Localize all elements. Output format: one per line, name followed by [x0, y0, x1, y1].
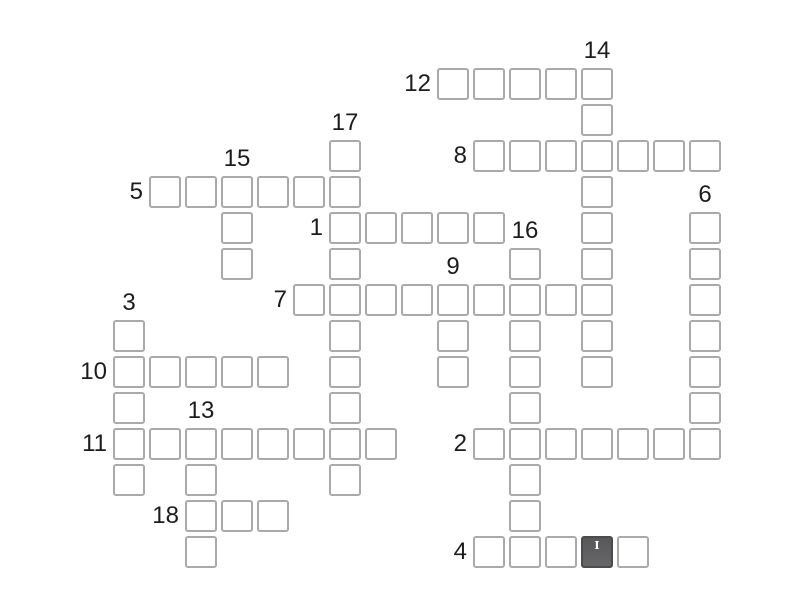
crossword-cell[interactable] — [437, 320, 469, 352]
crossword-cell[interactable] — [689, 320, 721, 352]
crossword-cell[interactable] — [401, 284, 433, 316]
crossword-cell[interactable] — [185, 428, 217, 460]
clue-number-9: 9 — [423, 254, 483, 280]
crossword-cell[interactable] — [221, 212, 253, 244]
crossword-cell[interactable] — [113, 320, 145, 352]
crossword-cell[interactable] — [149, 428, 181, 460]
clue-number-5: 5 — [95, 176, 143, 208]
crossword-cell[interactable] — [509, 140, 541, 172]
clue-number-12: 12 — [383, 68, 431, 100]
crossword-cell[interactable] — [401, 212, 433, 244]
crossword-cell[interactable] — [581, 176, 613, 208]
clue-number-7: 7 — [239, 284, 287, 316]
crossword-cell[interactable] — [329, 140, 361, 172]
crossword-cell[interactable] — [617, 428, 649, 460]
crossword-cell[interactable] — [581, 140, 613, 172]
crossword-cell[interactable] — [581, 428, 613, 460]
crossword-cell[interactable] — [581, 356, 613, 388]
crossword-cell[interactable] — [365, 212, 397, 244]
clue-number-14: 14 — [567, 38, 627, 64]
crossword-cell[interactable] — [689, 392, 721, 424]
crossword-cell[interactable] — [113, 464, 145, 496]
clue-number-17: 17 — [315, 110, 375, 136]
crossword-cell[interactable] — [113, 356, 145, 388]
crossword-cell[interactable] — [365, 428, 397, 460]
crossword-cell[interactable] — [257, 500, 289, 532]
crossword-cell-selected[interactable]: I — [581, 536, 613, 568]
crossword-cell[interactable] — [617, 536, 649, 568]
crossword-cell[interactable] — [329, 464, 361, 496]
crossword-cell[interactable] — [185, 500, 217, 532]
crossword-cell[interactable] — [149, 356, 181, 388]
crossword-cell[interactable] — [689, 284, 721, 316]
crossword-cell[interactable] — [221, 500, 253, 532]
crossword-cell[interactable] — [689, 428, 721, 460]
crossword-cell[interactable] — [509, 320, 541, 352]
crossword-cell[interactable] — [689, 140, 721, 172]
crossword-cell[interactable] — [473, 68, 505, 100]
crossword-cell[interactable] — [185, 464, 217, 496]
crossword-cell[interactable] — [293, 176, 325, 208]
text-cursor-icon: I — [583, 540, 611, 551]
crossword-cell[interactable] — [509, 284, 541, 316]
crossword-cell[interactable] — [509, 68, 541, 100]
crossword-cell[interactable] — [365, 284, 397, 316]
crossword-cell[interactable] — [545, 536, 577, 568]
crossword-cell[interactable] — [437, 356, 469, 388]
crossword-cell[interactable] — [581, 320, 613, 352]
crossword-cell[interactable] — [257, 428, 289, 460]
crossword-cell[interactable] — [545, 68, 577, 100]
crossword-cell[interactable] — [329, 428, 361, 460]
crossword-cell[interactable] — [473, 536, 505, 568]
crossword-cell[interactable] — [689, 212, 721, 244]
crossword-cell[interactable] — [509, 500, 541, 532]
crossword-cell[interactable] — [149, 176, 181, 208]
crossword-cell[interactable] — [689, 248, 721, 280]
clue-number-10: 10 — [59, 356, 107, 388]
crossword-cell[interactable] — [509, 392, 541, 424]
crossword-cell[interactable] — [581, 68, 613, 100]
crossword-cell[interactable] — [329, 356, 361, 388]
clue-number-8: 8 — [419, 140, 467, 172]
crossword-cell[interactable] — [293, 428, 325, 460]
crossword-cell[interactable] — [473, 428, 505, 460]
clue-number-18: 18 — [131, 500, 179, 532]
crossword-cell[interactable] — [509, 356, 541, 388]
crossword-cell[interactable] — [581, 212, 613, 244]
clue-number-15: 15 — [207, 146, 267, 172]
crossword-cell[interactable] — [113, 428, 145, 460]
crossword-cell[interactable] — [509, 464, 541, 496]
crossword-cell[interactable] — [473, 284, 505, 316]
crossword-cell[interactable] — [437, 212, 469, 244]
clue-number-2: 2 — [419, 428, 467, 460]
crossword-cell[interactable] — [221, 176, 253, 208]
crossword-cell[interactable] — [437, 68, 469, 100]
clue-number-13: 13 — [171, 398, 231, 424]
crossword-cell[interactable] — [113, 392, 145, 424]
page-background: 12148175151616793101311218I4 — [0, 0, 800, 600]
crossword-board: 12148175151616793101311218I4 — [0, 0, 800, 600]
crossword-cell[interactable] — [581, 104, 613, 136]
crossword-cell[interactable] — [329, 284, 361, 316]
crossword-cell[interactable] — [437, 284, 469, 316]
crossword-cell[interactable] — [329, 212, 361, 244]
crossword-cell[interactable] — [329, 248, 361, 280]
crossword-cell[interactable] — [221, 248, 253, 280]
crossword-cell[interactable] — [509, 248, 541, 280]
crossword-cell[interactable] — [221, 428, 253, 460]
crossword-cell[interactable] — [509, 428, 541, 460]
crossword-cell[interactable] — [545, 140, 577, 172]
crossword-cell[interactable] — [473, 140, 505, 172]
crossword-cell[interactable] — [509, 536, 541, 568]
crossword-cell[interactable] — [653, 428, 685, 460]
crossword-cell[interactable] — [581, 248, 613, 280]
crossword-cell[interactable] — [221, 356, 253, 388]
crossword-cell[interactable] — [329, 392, 361, 424]
crossword-cell[interactable] — [293, 284, 325, 316]
crossword-cell[interactable] — [257, 176, 289, 208]
crossword-cell[interactable] — [689, 356, 721, 388]
crossword-cell[interactable] — [329, 320, 361, 352]
crossword-cell[interactable] — [653, 140, 685, 172]
clue-number-11: 11 — [59, 428, 107, 460]
crossword-cell[interactable] — [257, 356, 289, 388]
clue-number-6: 6 — [675, 182, 735, 208]
crossword-cell[interactable] — [185, 356, 217, 388]
clue-number-3: 3 — [99, 290, 159, 316]
clue-number-4: 4 — [419, 536, 467, 568]
crossword-cell[interactable] — [185, 176, 217, 208]
crossword-cell[interactable] — [617, 140, 649, 172]
crossword-cell[interactable] — [545, 428, 577, 460]
crossword-cell[interactable] — [329, 176, 361, 208]
clue-number-16: 16 — [495, 218, 555, 244]
clue-number-1: 1 — [275, 212, 323, 244]
crossword-cell[interactable] — [581, 284, 613, 316]
crossword-cell[interactable] — [185, 536, 217, 568]
crossword-cell[interactable] — [545, 284, 577, 316]
